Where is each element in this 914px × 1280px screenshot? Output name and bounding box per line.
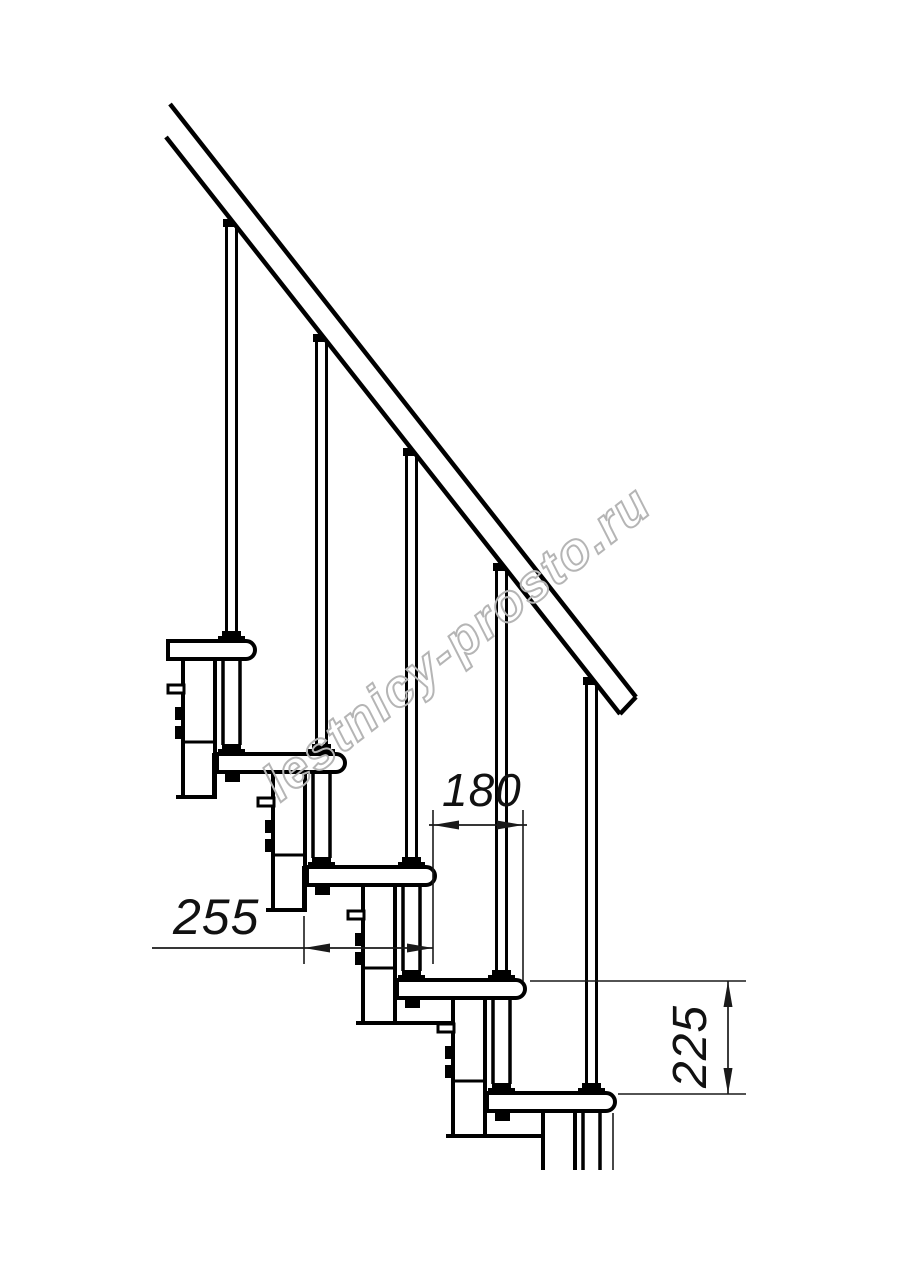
baluster-2 xyxy=(313,334,330,858)
baluster-1 xyxy=(223,219,240,745)
step-module-5 xyxy=(487,1083,615,1170)
step-rise-dimension-label: 225 xyxy=(664,1005,717,1089)
balusters xyxy=(223,219,613,1170)
technical-drawing-canvas: 255 180 225 lestnicy-prosto.ru xyxy=(0,0,914,1280)
dimension-step-run xyxy=(429,810,527,981)
tread-depth-dimension-label: 255 xyxy=(172,889,259,945)
step-run-dimension-label: 180 xyxy=(442,764,522,816)
baluster-3 xyxy=(403,448,420,971)
staircase-drawing: 255 180 225 xyxy=(0,0,914,1280)
